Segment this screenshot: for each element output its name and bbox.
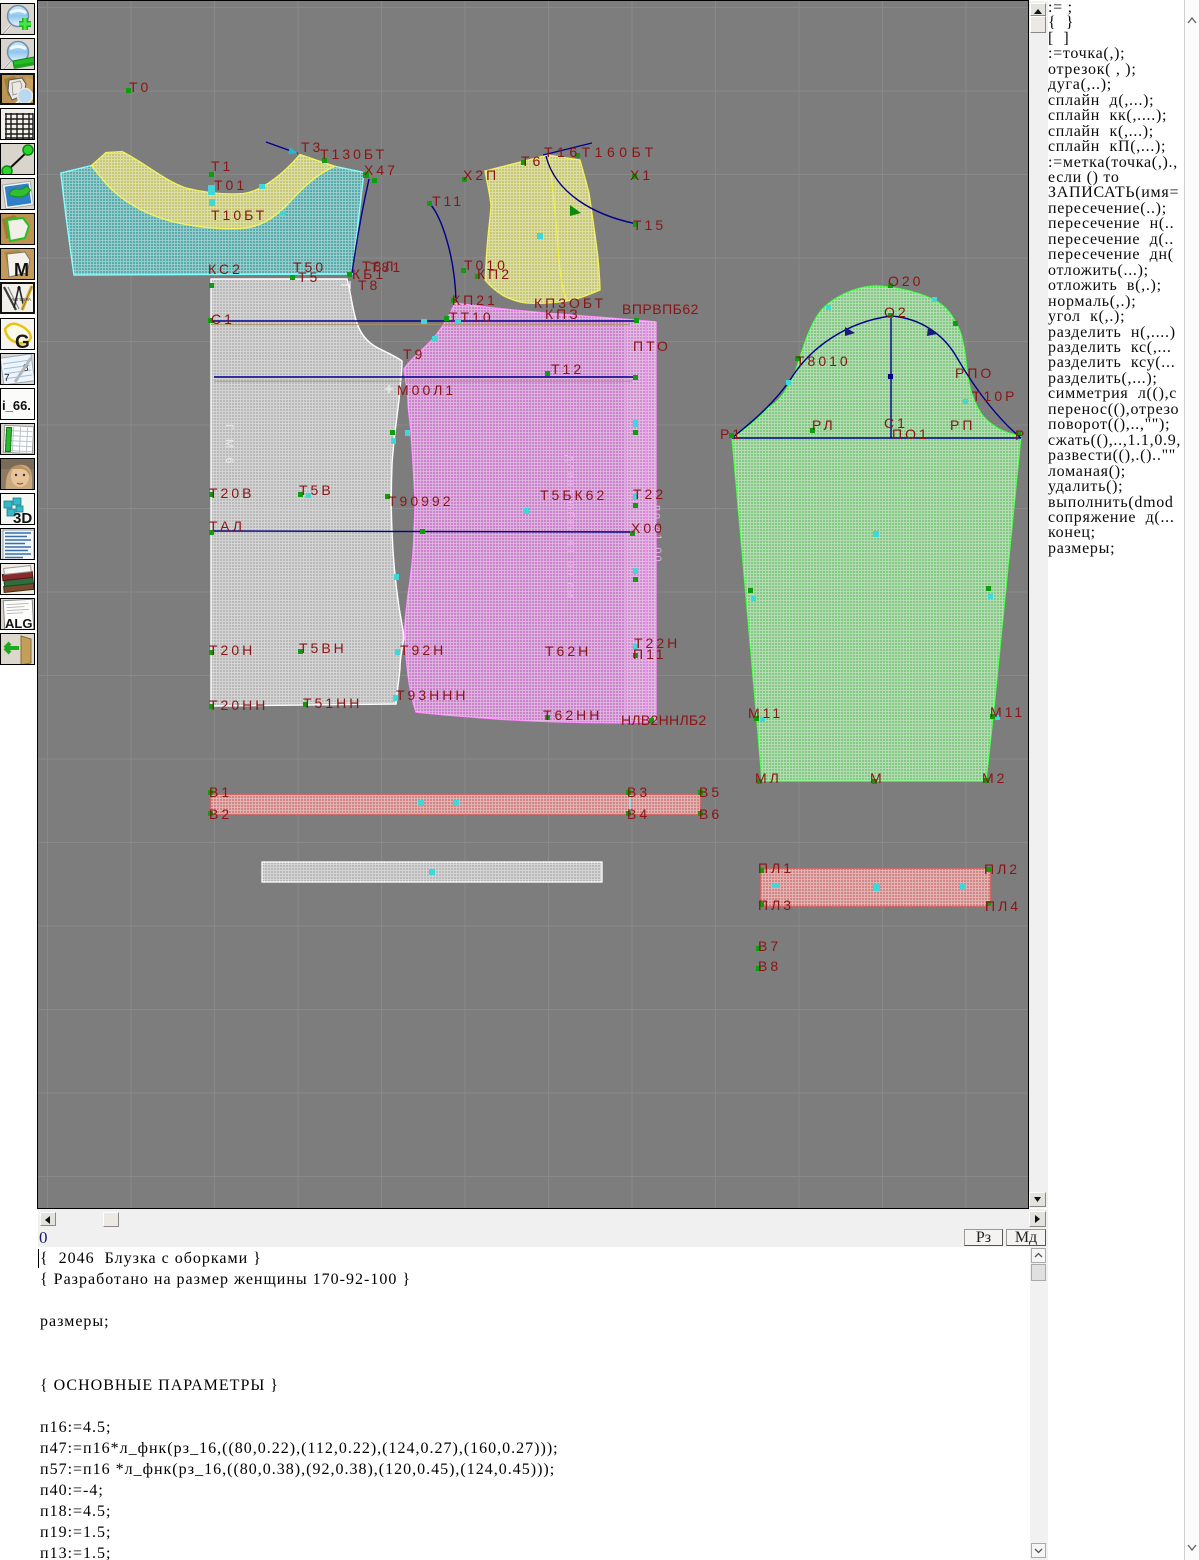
svg-text:В4: В4	[627, 806, 650, 822]
svg-text:ПЛ1: ПЛ1	[758, 860, 794, 876]
svg-text:КП21: КП21	[452, 292, 498, 308]
svg-text:Т20НН: Т20НН	[209, 697, 268, 713]
svg-text:Т51НН: Т51НН	[303, 695, 362, 711]
svg-text:В2: В2	[209, 806, 232, 822]
svg-text:НЛВ2ННЛБ2: НЛВ2ННЛБ2	[621, 712, 707, 728]
svg-text:МЛ: МЛ	[755, 770, 782, 786]
svg-text:ТАЛ: ТАЛ	[209, 518, 245, 534]
svg-text:В5: В5	[699, 784, 722, 800]
svg-text:В1: В1	[209, 784, 232, 800]
svg-text:Т1: Т1	[211, 158, 233, 174]
svg-text:Р: Р	[1015, 427, 1027, 443]
svg-text:РП: РП	[950, 417, 975, 433]
svg-text:ПЛ3: ПЛ3	[758, 897, 794, 913]
svg-text:О2: О2	[884, 304, 909, 320]
svg-text:М: М	[870, 770, 885, 786]
svg-text:ПЛ2: ПЛ2	[984, 861, 1020, 877]
svg-text:Т93ННН: Т93ННН	[396, 687, 468, 703]
svg-text:Р1: Р1	[720, 426, 743, 442]
svg-text:Т01: Т01	[214, 177, 247, 193]
svg-text:КП2: КП2	[477, 266, 512, 282]
svg-text:Х47: Х47	[364, 162, 398, 178]
svg-text:Х00: Х00	[631, 520, 665, 536]
svg-text:Т8: Т8	[358, 277, 380, 293]
svg-text:М11: М11	[748, 705, 783, 721]
svg-text:Т16Т160БТ: Т16Т160БТ	[544, 144, 658, 160]
svg-text:Т10Р: Т10Р	[972, 388, 1017, 404]
svg-text:М00Л1: М00Л1	[397, 382, 456, 398]
svg-text:В3: В3	[627, 784, 650, 800]
svg-text:Т15: Т15	[633, 217, 666, 233]
svg-text:i_66.: i_66.	[2, 398, 31, 413]
svg-text:В7: В7	[758, 938, 781, 954]
svg-text:ALG: ALG	[5, 616, 32, 630]
svg-text:КПЗ: КПЗ	[545, 306, 581, 322]
svg-text:Т5В: Т5В	[299, 482, 334, 498]
svg-text:Т10БТ: Т10БТ	[211, 207, 267, 223]
svg-text:ПТО: ПТО	[633, 338, 671, 354]
svg-text:ВПРВПБ62: ВПРВПБ62	[622, 301, 699, 317]
svg-text:Т5ВН: Т5ВН	[299, 640, 347, 656]
svg-text:Т130БТ: Т130БТ	[320, 146, 387, 162]
svg-text:П11: П11	[633, 646, 667, 662]
svg-text:Т22: Т22	[633, 486, 666, 502]
svg-text:Т90992: Т90992	[388, 493, 453, 509]
svg-text:G: G	[15, 332, 30, 350]
svg-text:РЛ: РЛ	[812, 417, 836, 433]
svg-text:Т6: Т6	[521, 153, 543, 169]
svg-text:Т12: Т12	[551, 361, 584, 377]
svg-text:Т11: Т11	[432, 193, 464, 209]
svg-text:М11: М11	[990, 704, 1025, 720]
svg-text:Х1: Х1	[630, 167, 653, 183]
svg-text:Т0: Т0	[129, 79, 151, 95]
svg-text:Т92Н: Т92Н	[400, 642, 446, 658]
svg-text:M: M	[14, 260, 29, 280]
svg-text:ПО1: ПО1	[892, 426, 930, 442]
svg-text:О20: О20	[888, 273, 923, 289]
svg-text:3D: 3D	[13, 510, 32, 525]
svg-text:Т5: Т5	[298, 269, 320, 285]
svg-text:АЛГЕБРА: АЛГЕБРА	[11, 297, 31, 302]
svg-text:Т9: Т9	[403, 346, 425, 362]
svg-text:Т20Н: Т20Н	[209, 642, 255, 658]
svg-text:С1: С1	[211, 311, 235, 327]
svg-text:Г М 6: Г М 6	[223, 424, 235, 466]
svg-text:РПО: РПО	[955, 365, 994, 381]
svg-text:длина юбки 41.00 см: длина юбки 41.00 см	[564, 455, 576, 599]
svg-text:В6: В6	[699, 806, 722, 822]
svg-text:Т62Н: Т62Н	[545, 643, 591, 659]
svg-text:В8: В8	[758, 958, 781, 974]
svg-text:7: 7	[4, 373, 10, 384]
svg-text:Т62НН: Т62НН	[543, 707, 602, 723]
svg-text:М2: М2	[982, 770, 1007, 786]
svg-text:Т5БК62: Т5БК62	[540, 487, 607, 503]
svg-text:ПЛ4: ПЛ4	[985, 898, 1021, 914]
svg-text:КС2: КС2	[208, 261, 243, 277]
svg-text:Т20В: Т20В	[209, 485, 254, 501]
svg-text:Т8010: Т8010	[796, 353, 851, 369]
svg-text:ТТ10: ТТ10	[449, 309, 494, 325]
svg-text:Х2П: Х2П	[463, 167, 499, 183]
